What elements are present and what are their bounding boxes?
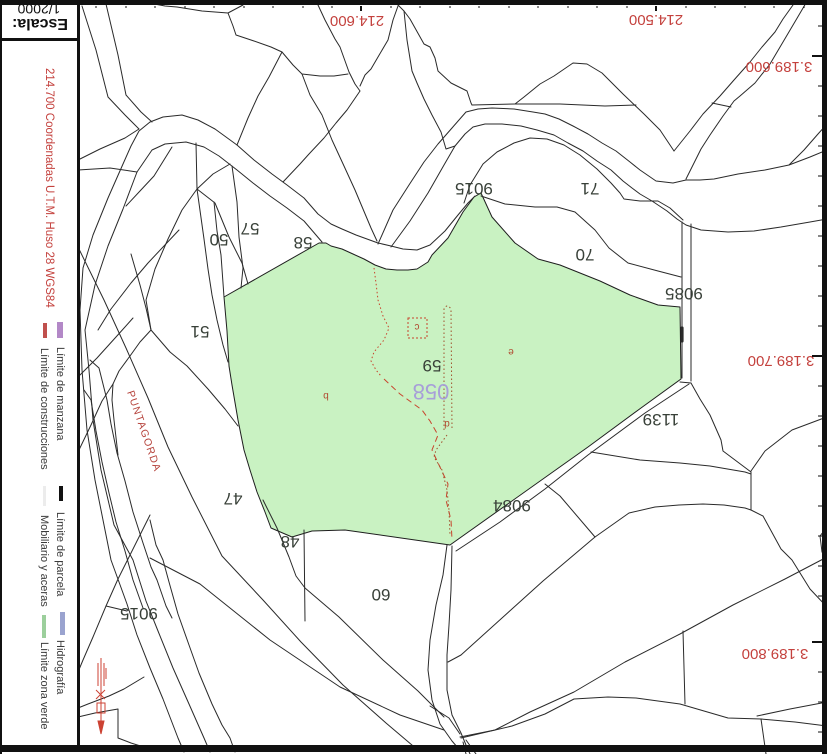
- svg-text:9085: 9085: [665, 284, 703, 303]
- svg-text:3.189.700: 3.189.700: [748, 352, 815, 369]
- svg-text:3.189.600: 3.189.600: [746, 58, 813, 75]
- svg-text:60: 60: [372, 585, 391, 604]
- svg-text:59: 59: [423, 356, 442, 375]
- svg-text:214.600: 214.600: [330, 12, 384, 29]
- svg-text:Límite de construcciones: Límite de construcciones: [38, 348, 50, 470]
- svg-text:e: e: [508, 346, 514, 357]
- svg-text:9084: 9084: [493, 496, 531, 515]
- svg-text:Límite de parcela: Límite de parcela: [54, 512, 66, 597]
- svg-text:Límite zona verde: Límite zona verde: [38, 642, 50, 729]
- svg-text:9015: 9015: [455, 179, 493, 198]
- svg-text:b: b: [323, 390, 329, 401]
- svg-text:058: 058: [413, 379, 450, 404]
- svg-text:70: 70: [576, 245, 595, 264]
- svg-text:9015: 9015: [120, 604, 158, 623]
- svg-text:57: 57: [241, 219, 260, 238]
- svg-text:Mobiliario y aceras: Mobiliario y aceras: [38, 515, 50, 607]
- svg-text:48: 48: [281, 532, 300, 551]
- svg-text:Hidrografía: Hidrografía: [54, 640, 66, 695]
- svg-text:Límite de manzana: Límite de manzana: [54, 347, 66, 441]
- svg-text:d: d: [444, 418, 450, 429]
- svg-text:1/2000: 1/2000: [17, 1, 60, 17]
- svg-text:3.189.800: 3.189.800: [742, 645, 809, 662]
- svg-text:1139: 1139: [643, 410, 680, 429]
- svg-text:c: c: [415, 321, 420, 332]
- svg-text:214.700 Coordenadas U.T.M. Hus: 214.700 Coordenadas U.T.M. Huso 28 WGS84: [43, 68, 55, 308]
- svg-text:51: 51: [191, 322, 210, 341]
- svg-text:71: 71: [581, 179, 600, 198]
- svg-text:50: 50: [210, 230, 229, 249]
- svg-text:58: 58: [294, 233, 313, 252]
- svg-text:47: 47: [224, 489, 243, 508]
- svg-text:214.500: 214.500: [629, 11, 683, 28]
